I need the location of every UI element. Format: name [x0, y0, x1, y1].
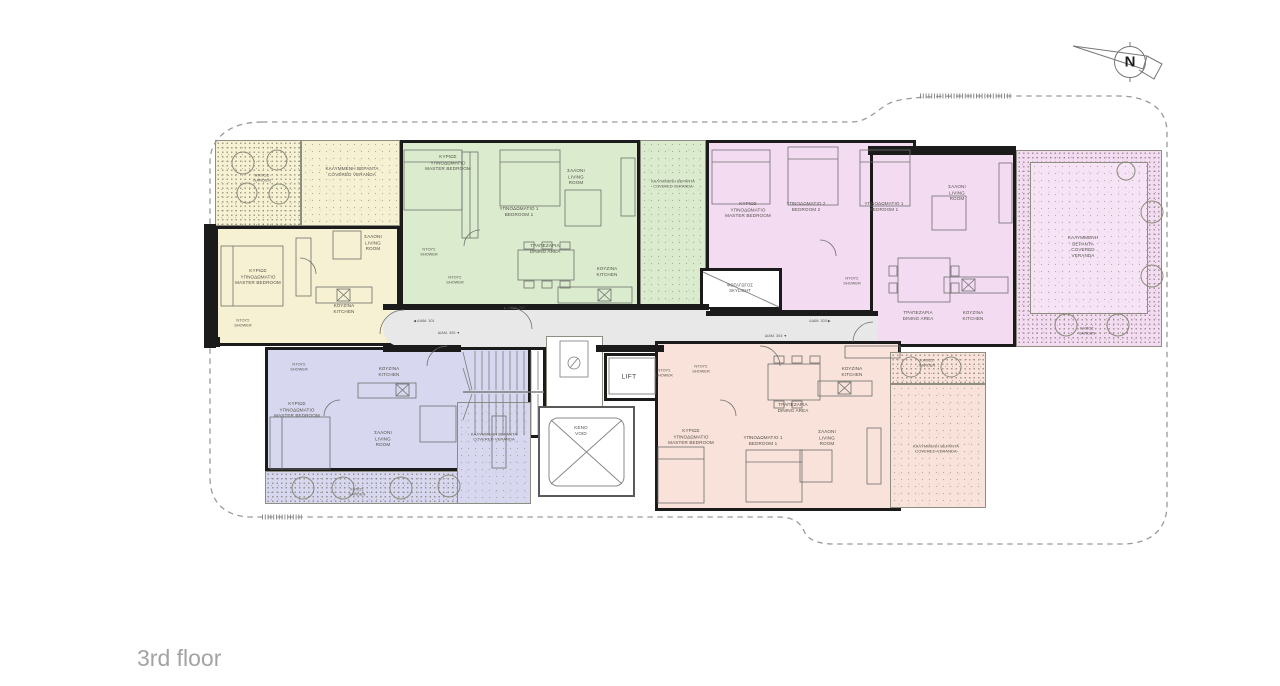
- pink-dining-area-label: ΤΡΑΠΕΖΑΡΙΑ DINING AREA: [903, 310, 934, 322]
- entry-apt-302-label: ▲ ΔΙΑΜ. 302: [503, 306, 525, 311]
- green-shower-1-label: ΝΤΟΥΣ SHOWER: [420, 247, 438, 257]
- yellow-covered-veranda-label: ΚΑΛΥΜΜΕΝΗ ΒΕΡΑΝΤΑ COVERED VERANDA: [325, 166, 378, 178]
- salmon-shower-1-label: ΝΤΟΥΣ SHOWER: [655, 368, 673, 378]
- green-kitchen-label: ΚΟΥΖΙΝΑ KITCHEN: [597, 266, 618, 278]
- skylight-label: ΦΩΤΑΓΩΓΟΣ SKYLIGHT: [727, 283, 753, 294]
- salmon-shower-2-label: ΝΤΟΥΣ SHOWER: [692, 364, 710, 374]
- purple-shower-label: ΝΤΟΥΣ SHOWER: [290, 362, 308, 372]
- green-living-room-label: ΣΑΛΟΝΙ LIVING ROOM: [567, 168, 585, 186]
- pink-covered-veranda-label: ΚΑΛΥΜΜΕΝΗ ΒΕΡΑΝΤΑ COVERED VERANDA: [1068, 235, 1098, 259]
- pink-bedroom-2-label: ΥΠΝΟΔΩΜΑΤΙΟ 2 BEDROOM 2: [786, 201, 825, 213]
- yellow-garden-label: ΚΗΠΟΣ GARDEN: [253, 173, 271, 183]
- entry-apt-301-label: ◀ ΔΙΑΜ. 301: [413, 319, 434, 324]
- green-covered-veranda-label: ΚΑΛΥΜΜΕΝΗ ΒΕΡΑΝΤΑ COVERED VERANDA: [651, 179, 695, 189]
- compass-north-label: N: [1125, 53, 1136, 72]
- purple-master-bedroom-label: ΚΥΡΙΩΣ ΥΠΝΟΔΩΜΑΤΙΟ MASTER BEDROOM: [274, 401, 320, 419]
- green-shower-2-label: ΝΤΟΥΣ SHOWER: [446, 275, 464, 285]
- green-bedroom-1-label: ΥΠΝΟΔΩΜΑΤΙΟ 1 BEDROOM 1: [499, 206, 538, 218]
- salmon-master-bedroom-label: ΚΥΡΙΩΣ ΥΠΝΟΔΩΜΑΤΙΟ MASTER BEDROOM: [668, 428, 714, 446]
- floor-plan-canvas: ΚΗΠΟΣ GARDENΚΑΛΥΜΜΕΝΗ ΒΕΡΑΝΤΑ COVERED VE…: [0, 0, 1280, 686]
- purple-garden-label: ΚΗΠΟΣ GARDEN: [349, 487, 366, 497]
- pink-master-bedroom-label: ΚΥΡΙΩΣ ΥΠΝΟΔΩΜΑΤΙΟ MASTER BEDROOM: [725, 201, 771, 219]
- floor-title: 3rd floor: [137, 645, 221, 672]
- yellow-living-room-label: ΣΑΛΟΝΙ LIVING ROOM: [364, 234, 382, 252]
- pink-kitchen-label: ΚΟΥΖΙΝΑ KITCHEN: [963, 310, 984, 322]
- salmon-bedroom-1-label: ΥΠΝΟΔΩΜΑΤΙΟ 1 BEDROOM 1: [743, 435, 782, 447]
- yellow-kitchen-label: ΚΟΥΖΙΝΑ KITCHEN: [334, 303, 355, 315]
- entry-apt-303-label: ΔΙΑΜ. 303 ▶: [809, 319, 830, 324]
- yellow-master-bedroom-label: ΚΥΡΙΩΣ ΥΠΝΟΔΩΜΑΤΙΟ MASTER BEDROOM: [235, 268, 281, 286]
- salmon-covered-veranda-label: ΚΑΛΥΜΜΕΝΗ ΒΕΡΑΝΤΑ COVERED VERANDA: [913, 444, 959, 454]
- salmon-kitchen-label: ΚΟΥΖΙΝΑ KITCHEN: [842, 366, 863, 378]
- lift-label: LIFT: [622, 373, 637, 381]
- green-master-bedroom-label: ΚΥΡΙΩΣ ΥΠΝΟΔΩΜΑΤΙΟ MASTER BEDROOM: [425, 154, 471, 172]
- pink-shower-label: ΝΤΟΥΣ SHOWER: [843, 276, 861, 286]
- entry-apt-304-label: ΔΙΑΜ. 304 ▼: [765, 334, 787, 339]
- salmon-dining-area-label: ΤΡΑΠΕΖΑΡΙΑ DINING AREA: [778, 402, 809, 414]
- void-label: ΚΕΝΟ VOID: [574, 425, 587, 437]
- salmon-living-room-label: ΣΑΛΟΝΙ LIVING ROOM: [818, 429, 836, 447]
- labels-layer: ΚΗΠΟΣ GARDENΚΑΛΥΜΜΕΝΗ ΒΕΡΑΝΤΑ COVERED VE…: [0, 0, 1280, 686]
- entry-apt-305-label: ΔΙΑΜ. 305 ▼: [438, 331, 460, 336]
- purple-living-room-label: ΣΑΛΟΝΙ LIVING ROOM: [374, 430, 392, 448]
- pink-garden-label: ΚΗΠΟΣ GARDEN: [1079, 326, 1096, 336]
- pink-bedroom-1-label: ΥΠΝΟΔΩΜΑΤΙΟ 1 BEDROOM 1: [864, 201, 903, 213]
- green-dining-area-label: ΤΡΑΠΕΖΑΡΙΑ DINING AREA: [530, 243, 561, 255]
- yellow-shower-label: ΝΤΟΥΣ SHOWER: [234, 318, 252, 328]
- purple-covered-veranda-label: ΚΑΛΥΜΜΕΝΗ ΒΕΡΑΝΤΑ COVERED VERANDA: [471, 432, 517, 442]
- purple-kitchen-label: ΚΟΥΖΙΝΑ KITCHEN: [379, 366, 400, 378]
- salmon-garden-label: ΚΗΠΟΣ GARDEN: [919, 358, 936, 368]
- pink-living-room-label: ΣΑΛΟΝΙ LIVING ROOM: [948, 184, 966, 202]
